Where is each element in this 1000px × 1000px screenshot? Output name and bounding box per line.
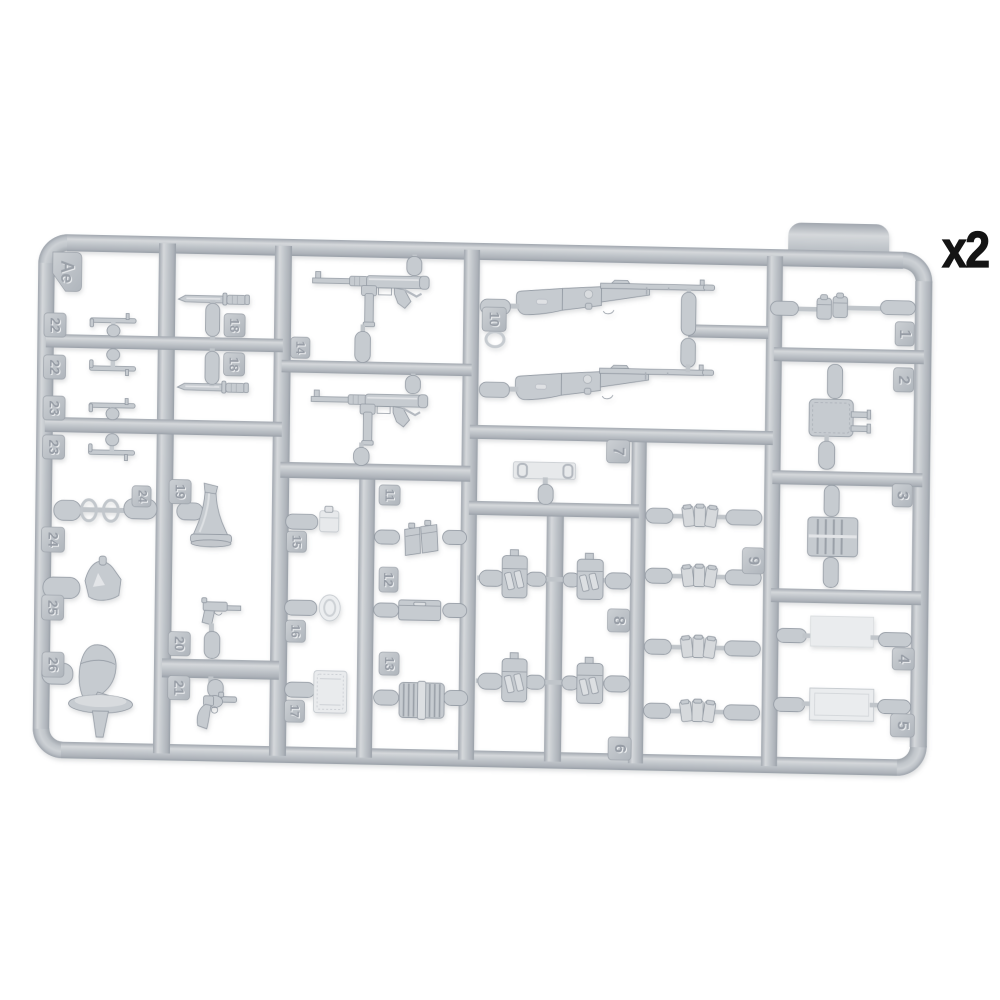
svg-text:12: 12 xyxy=(381,572,396,587)
svg-text:10: 10 xyxy=(487,312,502,327)
svg-text:6: 6 xyxy=(611,744,628,753)
svg-text:5: 5 xyxy=(894,721,911,730)
svg-text:11: 11 xyxy=(383,489,397,502)
svg-text:20: 20 xyxy=(172,636,187,651)
svg-text:1: 1 xyxy=(896,329,913,338)
svg-text:14: 14 xyxy=(293,341,307,355)
svg-text:18: 18 xyxy=(227,357,242,372)
svg-text:2: 2 xyxy=(895,375,912,384)
svg-text:15: 15 xyxy=(289,535,303,549)
svg-text:17: 17 xyxy=(287,704,301,718)
svg-text:13: 13 xyxy=(382,657,396,671)
svg-text:26: 26 xyxy=(45,657,60,673)
svg-text:25: 25 xyxy=(45,600,60,616)
svg-text:4: 4 xyxy=(895,654,912,663)
svg-text:24: 24 xyxy=(45,532,60,548)
svg-text:22: 22 xyxy=(47,359,62,374)
svg-text:3: 3 xyxy=(894,491,911,500)
svg-text:Ae: Ae xyxy=(57,260,77,283)
svg-text:23: 23 xyxy=(46,439,61,455)
svg-text:19: 19 xyxy=(172,484,187,499)
svg-text:16: 16 xyxy=(288,624,302,638)
svg-text:22: 22 xyxy=(47,317,62,332)
svg-text:24: 24 xyxy=(135,490,147,504)
svg-text:21: 21 xyxy=(171,680,186,696)
svg-text:9: 9 xyxy=(745,556,762,565)
svg-text:23: 23 xyxy=(46,400,61,416)
svg-text:7: 7 xyxy=(610,447,627,456)
svg-text:18: 18 xyxy=(227,318,242,333)
svg-text:8: 8 xyxy=(610,616,627,625)
